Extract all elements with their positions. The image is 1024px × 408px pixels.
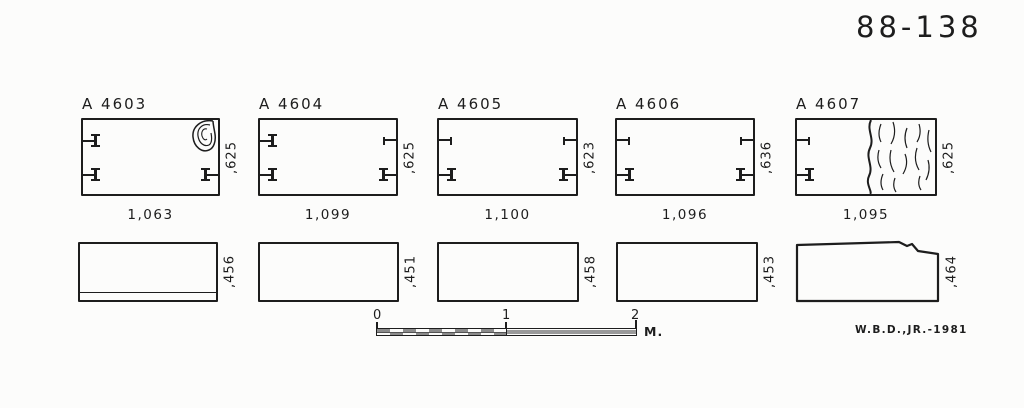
clamp-cutting-icon	[260, 134, 277, 147]
plan-view-block-1	[81, 118, 220, 196]
depth-dimension: ,623	[583, 134, 598, 182]
draftsman-signature: W.B.D.,JR.-1981	[855, 324, 968, 336]
clamp-cutting-icon	[559, 168, 576, 181]
width-dimension: 1,100	[437, 207, 578, 223]
dashed-clamp-cutting-icon	[736, 134, 753, 147]
clamp-cutting-icon	[379, 168, 396, 181]
break-texture-icon	[863, 120, 935, 194]
depth-dimension: ,625	[225, 134, 240, 182]
plan-view-block-5	[795, 118, 937, 196]
elevation-view-block-4	[616, 242, 758, 302]
plan-view-block-3	[437, 118, 578, 196]
scale-bar: 0 1 2 M.	[374, 308, 674, 342]
width-dimension: 1,095	[795, 207, 937, 223]
plan-view-block-4	[615, 118, 755, 196]
depth-dimension: ,625	[403, 134, 418, 182]
elevation-view-block-2	[258, 242, 399, 302]
height-dimension: ,456	[223, 248, 238, 296]
scale-bar-checkered-half	[377, 329, 507, 335]
height-dimension: ,453	[763, 248, 778, 296]
scale-bar-solid-half	[507, 329, 636, 335]
clamp-cutting-icon	[617, 168, 634, 181]
scale-bar-rule	[376, 328, 637, 336]
clamp-cutting-icon	[83, 168, 100, 181]
damage-outline-icon	[185, 120, 217, 162]
depth-dimension: ,636	[760, 134, 775, 182]
panel-label: A 4604	[259, 95, 324, 113]
dashed-clamp-cutting-icon	[617, 134, 634, 147]
clamp-cutting-icon	[260, 168, 277, 181]
dashed-clamp-cutting-icon	[439, 134, 456, 147]
base-band-line	[80, 292, 216, 294]
panel-label: A 4606	[616, 95, 681, 113]
panel-label: A 4603	[82, 95, 147, 113]
height-dimension: ,451	[404, 248, 419, 296]
clamp-cutting-icon	[439, 168, 456, 181]
elevation-view-block-3	[437, 242, 579, 302]
scale-tick-label: 1	[502, 308, 511, 323]
depth-dimension: ,625	[942, 134, 957, 182]
dashed-clamp-cutting-icon	[559, 134, 576, 147]
scale-tick-label: 0	[373, 308, 382, 323]
panel-label: A 4607	[796, 95, 861, 113]
width-dimension: 1,063	[81, 207, 220, 223]
width-dimension: 1,096	[615, 207, 755, 223]
plate-number: 88-138	[856, 10, 983, 44]
width-dimension: 1,099	[258, 207, 398, 223]
clamp-cutting-icon	[797, 168, 814, 181]
clamp-cutting-icon	[201, 168, 218, 181]
dashed-clamp-cutting-icon	[379, 134, 396, 147]
elevation-view-block-5	[795, 240, 941, 303]
scanned-drawing-sheet: 88-138 A 4603 1,063 ,625 ,456 A 4604 1,0…	[0, 0, 1024, 408]
panel-label: A 4605	[438, 95, 503, 113]
plan-view-block-2	[258, 118, 398, 196]
height-dimension: ,458	[584, 248, 599, 296]
dashed-clamp-cutting-icon	[797, 134, 814, 147]
scale-unit-label: M.	[644, 324, 663, 339]
clamp-cutting-icon	[83, 134, 100, 147]
clamp-cutting-icon	[736, 168, 753, 181]
height-dimension: ,464	[945, 248, 960, 296]
elevation-view-block-1	[78, 242, 218, 302]
